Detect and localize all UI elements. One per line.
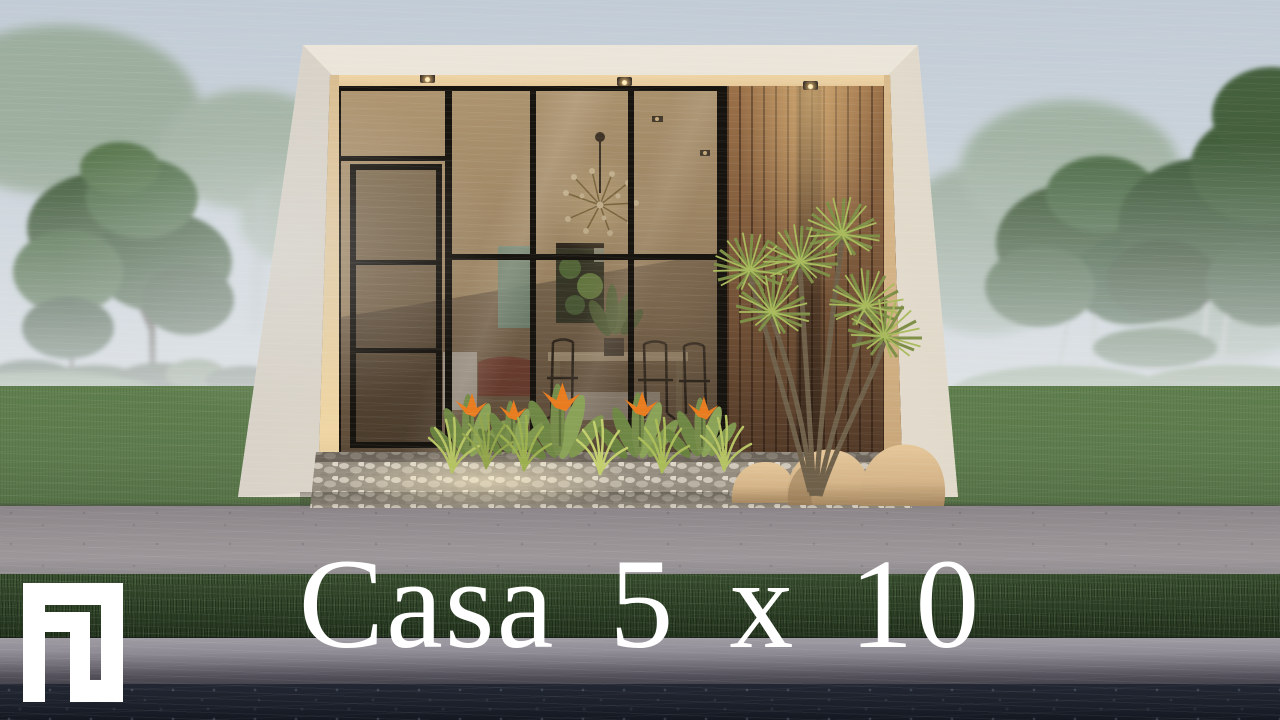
thumbnail-render: Casa 5 x 10 [0,0,1280,720]
bird-of-paradise [426,382,740,463]
channel-logo-icon [23,581,123,703]
video-title: Casa 5 x 10 [0,540,1280,668]
